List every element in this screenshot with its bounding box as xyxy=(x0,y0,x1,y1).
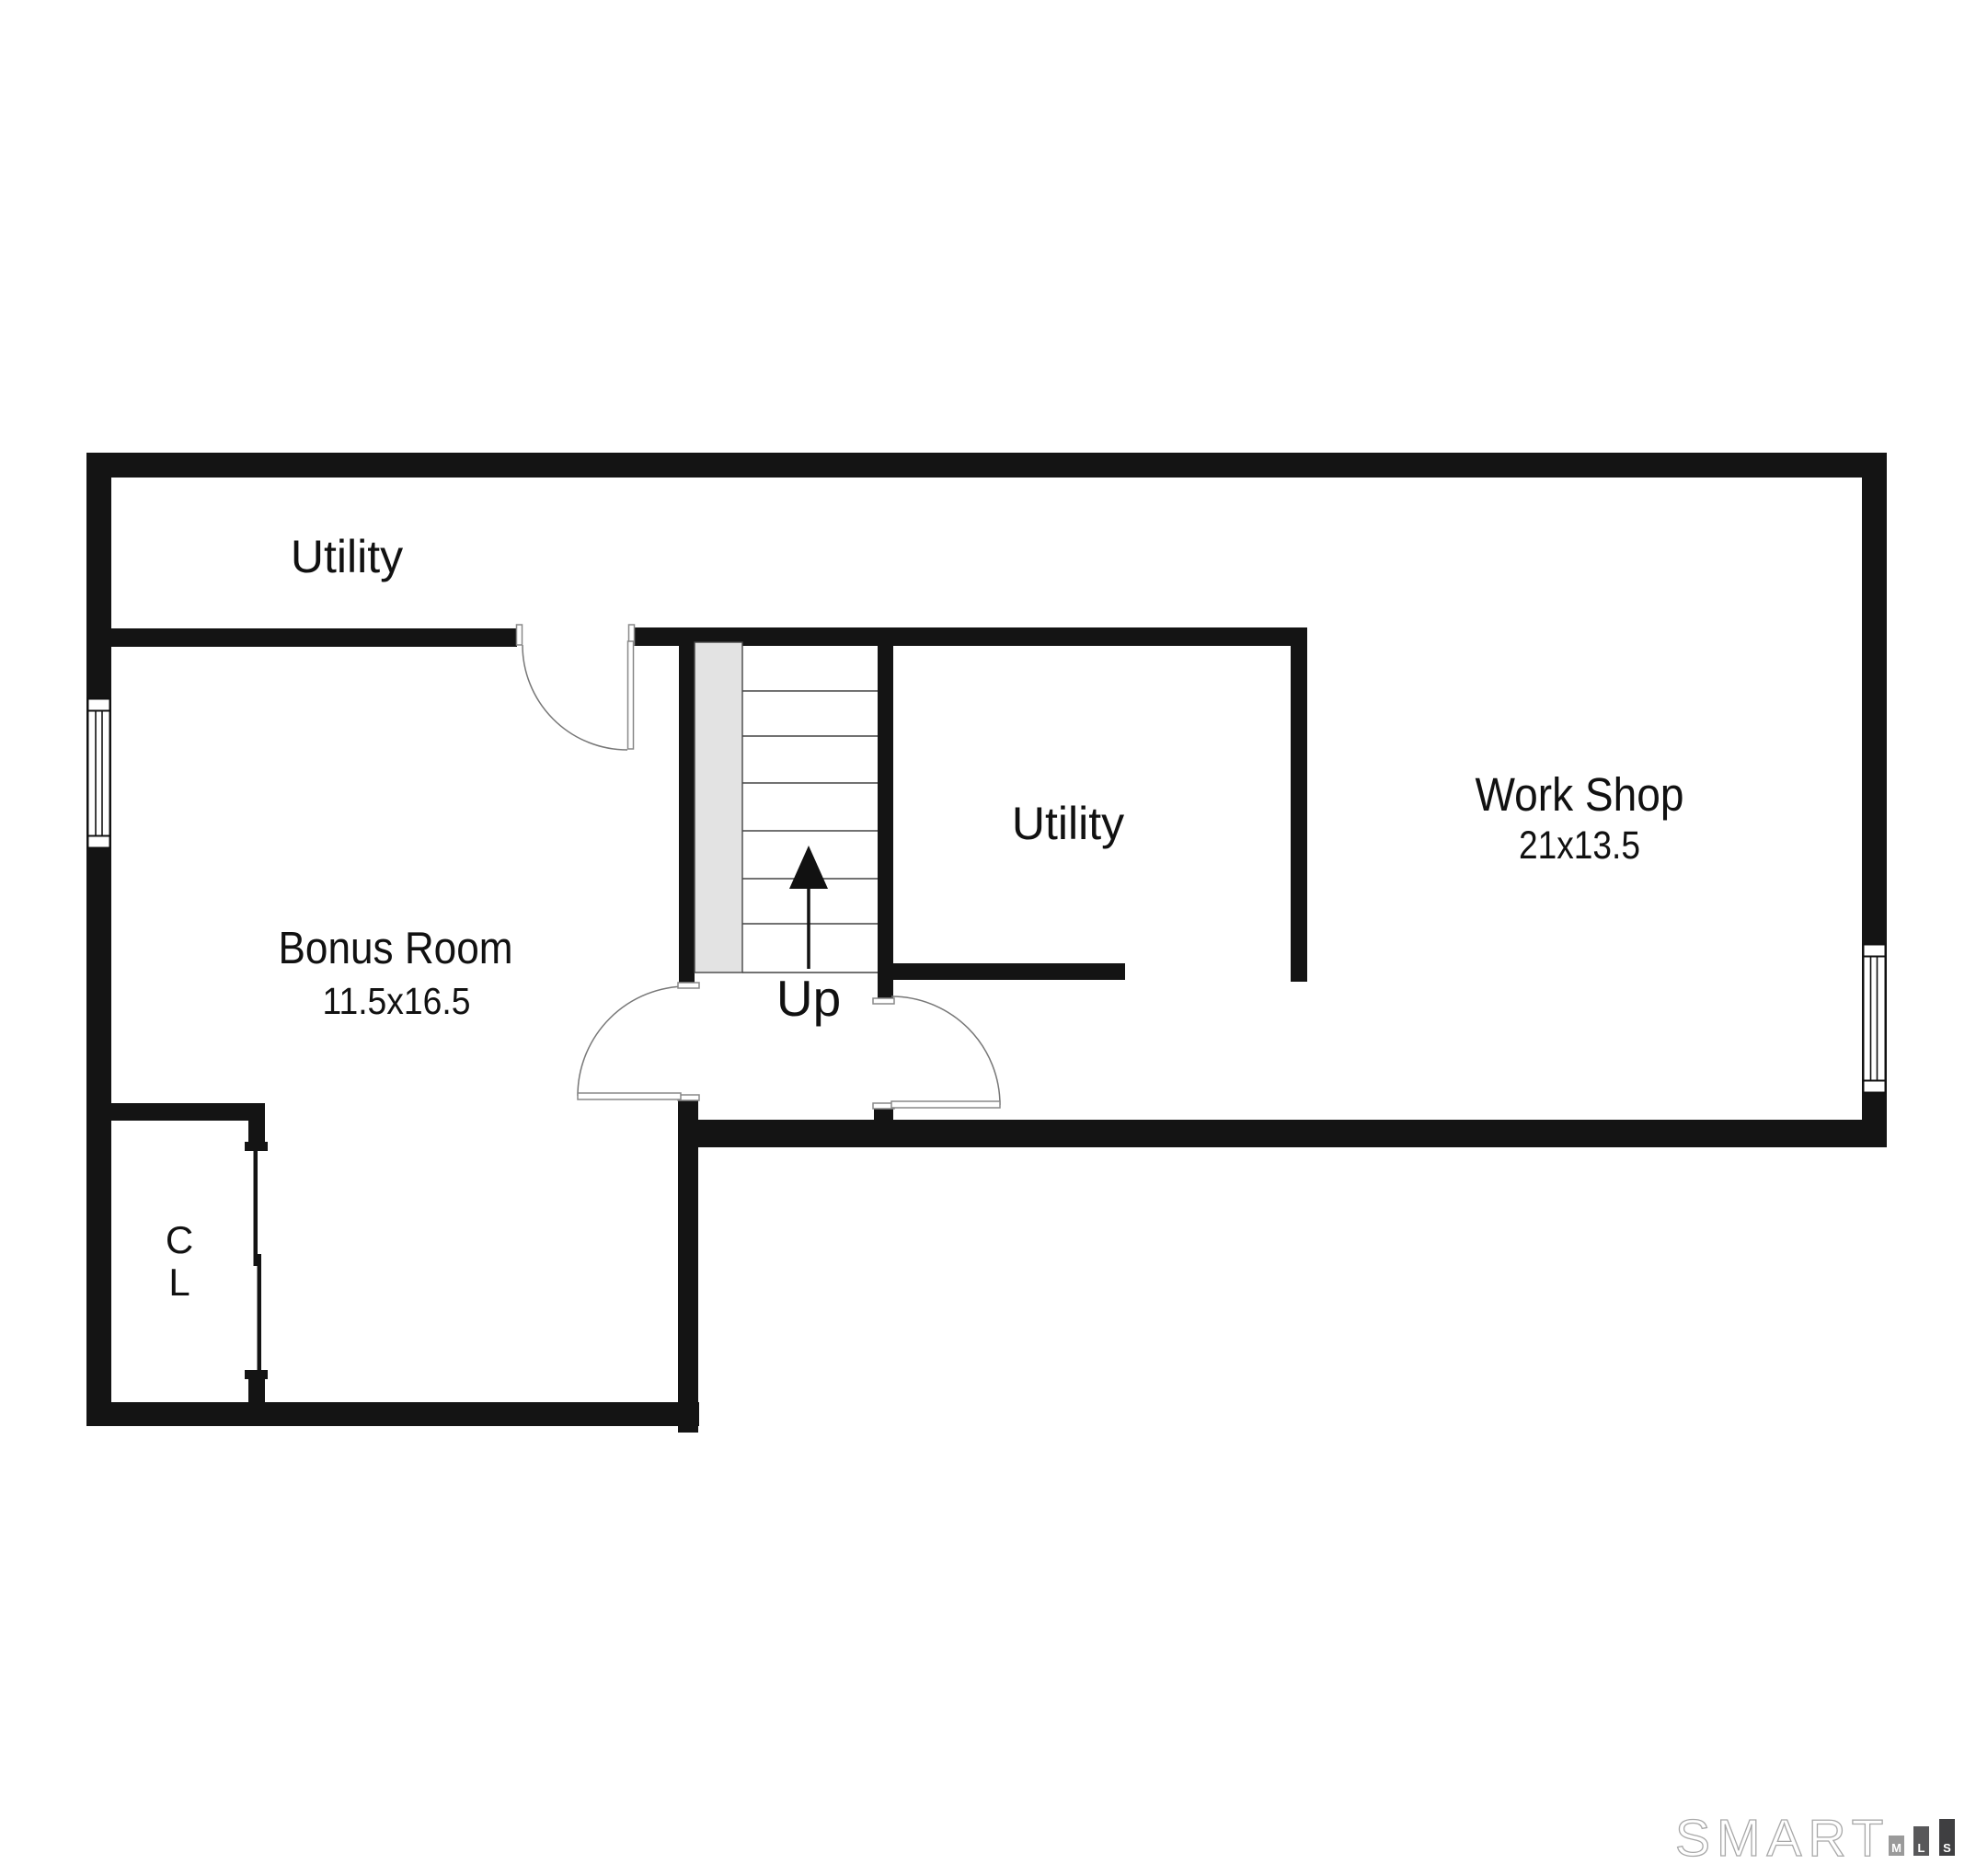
svg-text:21x13.5: 21x13.5 xyxy=(1519,823,1640,868)
svg-text:SMART: SMART xyxy=(1675,1809,1890,1868)
svg-text:Utility: Utility xyxy=(291,531,403,582)
svg-text:Utility: Utility xyxy=(1012,798,1124,849)
svg-text:Work Shop: Work Shop xyxy=(1476,768,1684,821)
svg-text:Bonus Room: Bonus Room xyxy=(279,924,513,973)
svg-text:M: M xyxy=(1891,1841,1901,1855)
svg-text:L: L xyxy=(168,1260,190,1304)
svg-text:C: C xyxy=(166,1218,193,1261)
svg-text:S: S xyxy=(1943,1841,1951,1855)
svg-text:L: L xyxy=(1918,1841,1925,1855)
svg-text:11.5x16.5: 11.5x16.5 xyxy=(323,980,471,1022)
svg-text:Up: Up xyxy=(776,970,841,1027)
